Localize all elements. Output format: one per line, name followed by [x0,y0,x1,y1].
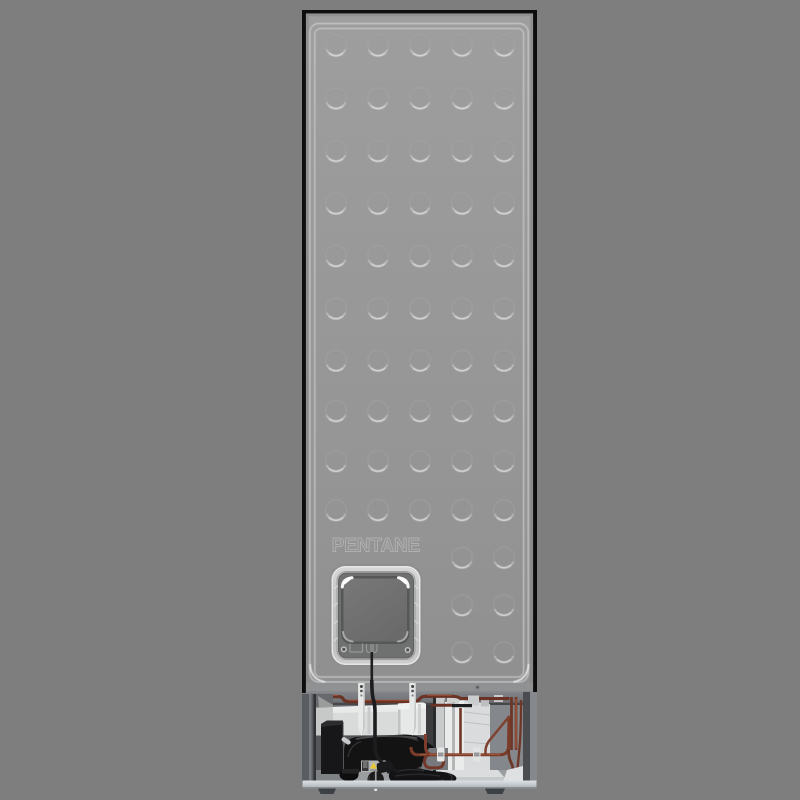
svg-text:PENTANE: PENTANE [332,535,421,557]
